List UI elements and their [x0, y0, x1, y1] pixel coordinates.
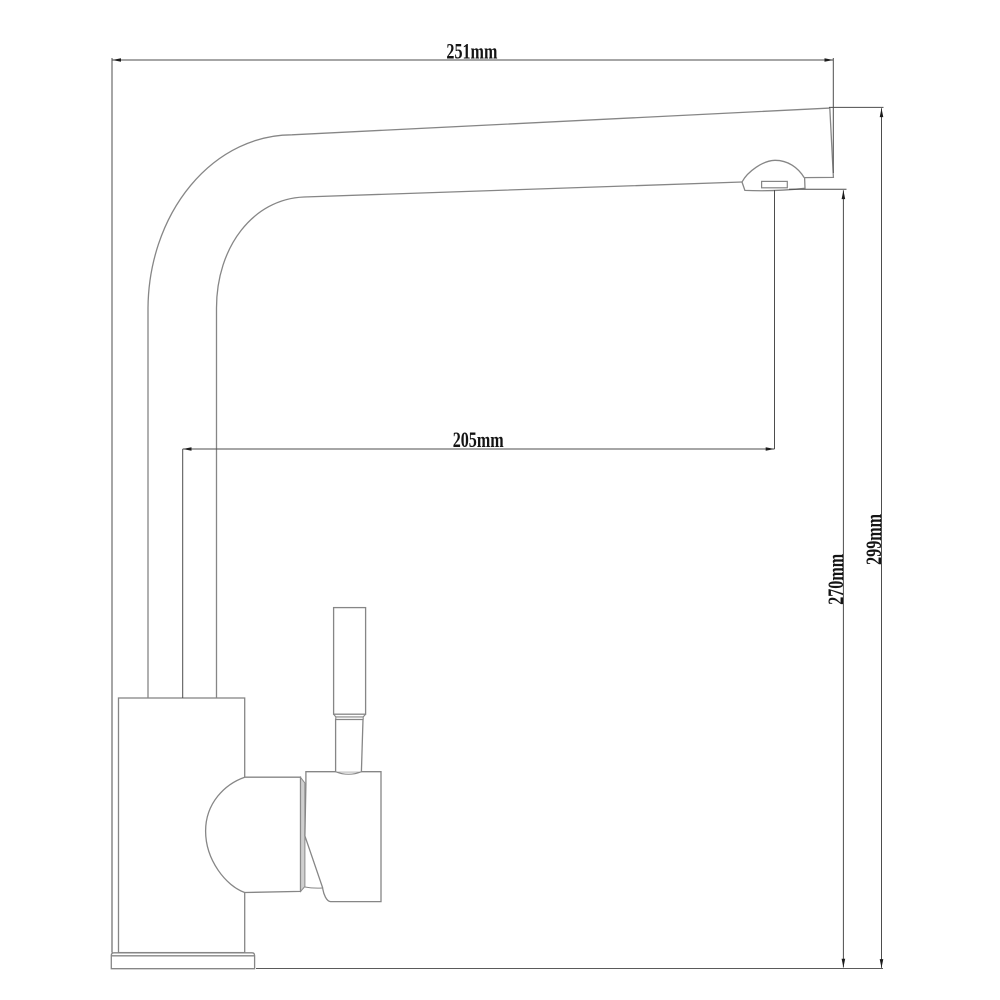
svg-text:251mm: 251mm: [446, 39, 497, 64]
svg-text:299mm: 299mm: [861, 514, 886, 565]
svg-text:205mm: 205mm: [453, 427, 504, 452]
svg-text:270mm: 270mm: [823, 554, 848, 605]
